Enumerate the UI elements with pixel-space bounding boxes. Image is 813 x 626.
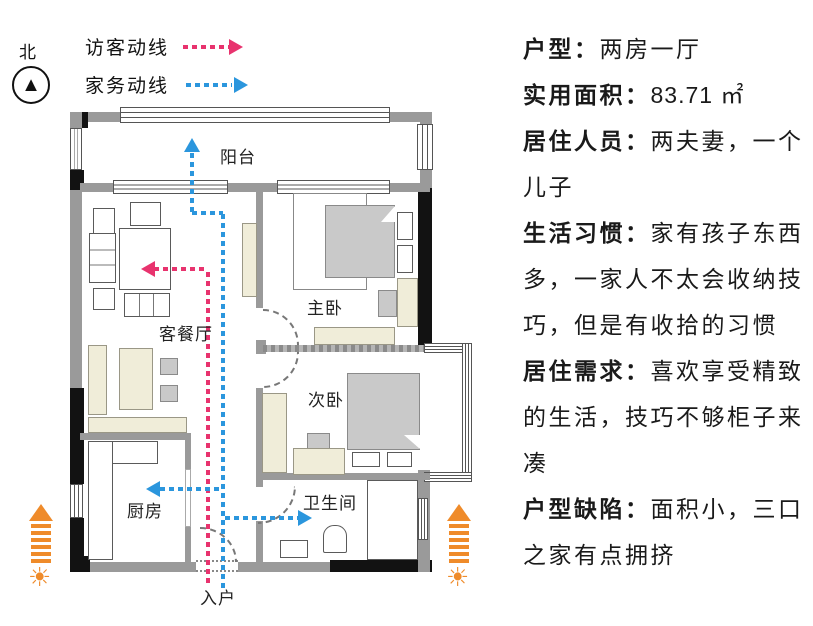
window (277, 180, 390, 194)
housework-path (190, 153, 194, 213)
kitchen-counter (88, 441, 113, 560)
info-area-value: 83.71 ㎡ (651, 82, 745, 108)
room-label-bathroom: 卫生间 (303, 489, 357, 514)
window (70, 484, 83, 518)
wall (80, 433, 188, 440)
wall (330, 560, 432, 572)
legend-visitor-label: 访客动线 (85, 33, 169, 60)
sun-icon: ☀ (28, 564, 51, 590)
shower (367, 480, 418, 560)
room-label-master: 主卧 (307, 294, 343, 319)
info-area-label: 实用面积： (523, 82, 651, 108)
wall (263, 345, 424, 352)
window (417, 124, 433, 170)
sunlight-arrow-icon (29, 504, 53, 521)
housework-path (192, 211, 223, 215)
housework-path (221, 214, 225, 588)
wall (263, 473, 430, 480)
sofa (89, 233, 116, 283)
wall (418, 188, 432, 345)
desk (293, 448, 345, 475)
master-door-arc (263, 309, 299, 345)
compass-icon: ▲ (12, 66, 50, 104)
housework-arrow-icon (184, 138, 200, 152)
sunlight-arrow-icon (447, 504, 471, 521)
room-label-entry: 入户 (200, 584, 236, 609)
room-label-living: 客餐厅 (159, 320, 213, 345)
wall (70, 556, 90, 572)
housework-arrow-icon (146, 481, 160, 497)
wall (256, 521, 263, 572)
sunlight-stripes (449, 524, 469, 564)
wall (185, 527, 191, 572)
info-needs: 居住需求：喜欢享受精致的生活，技巧不够柜子来凑 (523, 348, 813, 486)
info-habits-label: 生活习惯： (523, 220, 651, 246)
compass-needle-icon: ▲ (21, 75, 41, 95)
visitor-path (154, 267, 208, 271)
info-defects-label: 户型缺陷： (523, 496, 651, 522)
bay-window (462, 343, 472, 482)
info-layout-value: 两房一厅 (600, 36, 702, 62)
housework-path (160, 487, 223, 491)
sun-icon: ☀ (446, 564, 469, 590)
info-needs-label: 居住需求： (523, 358, 651, 384)
chair (130, 202, 161, 226)
housework-line-sample (186, 83, 232, 87)
pillow (352, 452, 380, 467)
visitor-line-sample (183, 45, 229, 49)
window (70, 128, 82, 170)
bay-window (424, 472, 472, 482)
wardrobe (397, 278, 418, 327)
floorplan-page: 北 ▲ 访客动线 家务动线 (0, 0, 813, 626)
tv-cabinet (242, 223, 257, 297)
wardrobe (262, 393, 287, 473)
bench (314, 327, 395, 345)
apartment-info-panel: 户型：两房一厅 实用面积：83.71 ㎡ 居住人员：两夫妻，一个儿子 生活习惯：… (523, 26, 813, 578)
info-residents: 居住人员：两夫妻，一个儿子 (523, 118, 813, 210)
side-table (93, 288, 115, 310)
window (120, 107, 390, 123)
visitor-arrow-icon (141, 261, 155, 277)
info-layout-label: 户型： (523, 36, 600, 62)
coffee-table (119, 228, 171, 290)
dining-chair (160, 358, 178, 375)
info-layout: 户型：两房一厅 (523, 26, 813, 72)
wall (185, 433, 191, 469)
armchair (93, 208, 115, 235)
info-defects: 户型缺陷：面积小，三口之家有点拥挤 (523, 486, 813, 578)
room-label-second: 次卧 (308, 386, 344, 411)
kitchen-sliding-door (185, 469, 191, 527)
sink (280, 540, 308, 558)
side-table (378, 290, 397, 317)
dining-chair (160, 385, 178, 402)
dining-table (119, 348, 153, 410)
info-residents-label: 居住人员： (523, 128, 651, 154)
housework-arrow-icon (234, 77, 248, 93)
sunlight-stripes (31, 524, 51, 564)
pillow (387, 452, 412, 467)
window (113, 180, 228, 194)
sideboard (88, 417, 187, 433)
visitor-arrow-icon (229, 39, 243, 55)
nightstand (397, 245, 413, 273)
legend-housework-label: 家务动线 (85, 71, 169, 98)
wall (256, 190, 263, 308)
room-label-balcony: 阳台 (220, 143, 256, 168)
cabinet (88, 345, 107, 415)
sofa (124, 293, 170, 317)
master-bed (325, 205, 395, 278)
info-habits: 生活习惯：家有孩子东西多，一家人不太会收纳技巧，但是有收拾的习惯 (523, 210, 813, 348)
toilet (323, 525, 347, 553)
housework-path (225, 516, 299, 520)
info-area: 实用面积：83.71 ㎡ (523, 72, 813, 118)
north-label: 北 (19, 38, 36, 63)
nightstand (397, 212, 413, 240)
room-label-kitchen: 厨房 (127, 497, 163, 522)
window (418, 498, 428, 540)
second-door-arc (263, 352, 299, 388)
